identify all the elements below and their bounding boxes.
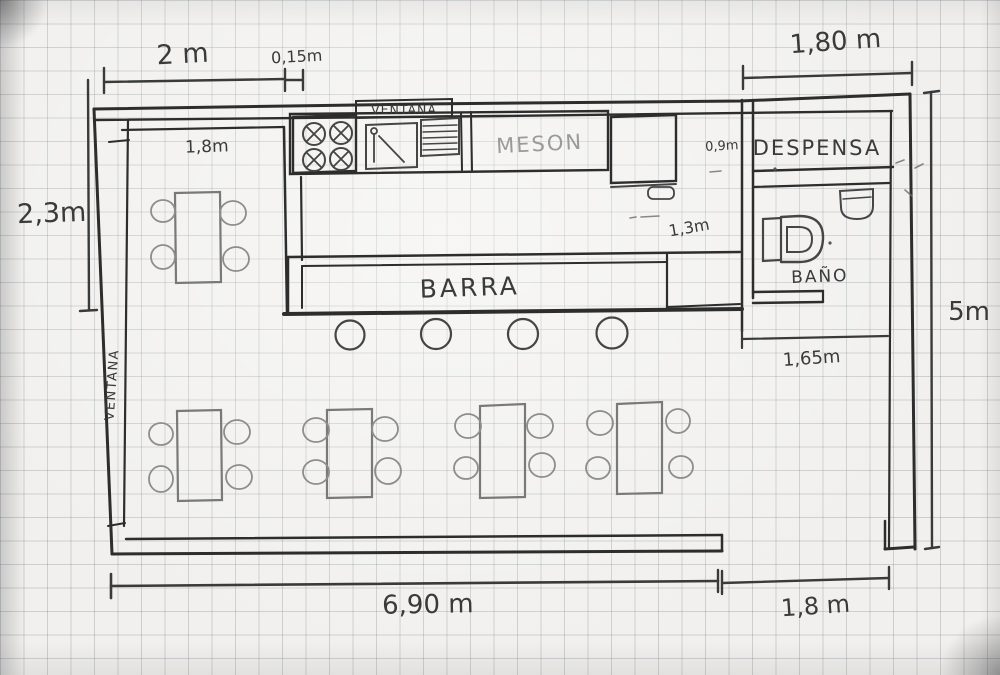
bar-counter: BARRA bbox=[284, 252, 742, 350]
dim-2-3m: 2,3m bbox=[17, 80, 97, 311]
floor-plan-sketch: 1,8m bbox=[0, 0, 1000, 675]
chair-icon bbox=[455, 414, 481, 438]
bottom-wall-outer bbox=[112, 551, 722, 554]
bar-top-outer bbox=[288, 252, 740, 257]
chair-icon bbox=[454, 457, 478, 479]
pencil-dot bbox=[773, 167, 776, 170]
bottom-wall-inner bbox=[126, 535, 722, 539]
dim-1-3m: 1,3m bbox=[641, 215, 711, 241]
dim-6-90m-label: 6,90 m bbox=[382, 589, 474, 621]
dim-5m: 5m bbox=[924, 91, 990, 549]
bathroom-bottom-wall-1 bbox=[753, 291, 823, 292]
graph-paper-photo: 1,8m bbox=[0, 0, 1000, 675]
chair-icon bbox=[527, 414, 553, 438]
kitchen-window-label: VENTANA bbox=[371, 102, 437, 117]
outer-walls bbox=[94, 94, 915, 554]
dim-1-65m-label: 1,65m bbox=[782, 346, 841, 371]
dim-2m: 2 m bbox=[104, 38, 285, 93]
nook-right-wall-inner bbox=[301, 177, 302, 260]
top-wall-outer bbox=[94, 94, 910, 109]
dining-tables bbox=[149, 402, 693, 501]
dining-nook: 1,8m bbox=[122, 127, 302, 313]
bathroom-label: BAÑO bbox=[791, 264, 849, 288]
dining-table bbox=[177, 410, 222, 501]
chair-icon bbox=[587, 411, 613, 435]
left-wall-inner bbox=[124, 120, 128, 526]
stove-burner-icon bbox=[303, 123, 325, 145]
dining-table bbox=[175, 192, 221, 283]
dim-1-8m-bottom-label: 1,8 m bbox=[780, 590, 851, 623]
bathroom-sink-icon bbox=[840, 189, 873, 219]
dim-1-3m-label: 1,3m bbox=[667, 215, 711, 241]
dim-1-80m-label: 1,80 m bbox=[789, 24, 882, 60]
bar-stool-icon bbox=[597, 318, 628, 349]
chair-icon bbox=[223, 247, 249, 271]
drain-shelf bbox=[421, 118, 459, 156]
dim-1-65m: 1,65m bbox=[742, 330, 888, 371]
nook-top-line bbox=[122, 127, 284, 130]
stove-burner-icon bbox=[303, 149, 325, 171]
pencil-mark bbox=[630, 217, 636, 218]
dim-0-15m: 0,15m bbox=[271, 46, 323, 91]
pantry-and-bathroom: DESPENSA BAÑO bbox=[742, 100, 893, 331]
fridge-body bbox=[611, 115, 676, 183]
pencil-mark bbox=[896, 160, 904, 163]
bar-front-edge bbox=[284, 309, 742, 314]
chair-icon bbox=[226, 465, 252, 489]
dining-table bbox=[480, 404, 525, 498]
bar-top-inner bbox=[302, 262, 667, 266]
chair-icon bbox=[303, 460, 329, 484]
bar-label: BARRA bbox=[419, 271, 520, 303]
chair-icon bbox=[220, 201, 246, 225]
kitchen-counter: MESON VENTANA bbox=[290, 99, 608, 174]
fridge-handle bbox=[648, 187, 674, 199]
nook-right-wall-outer bbox=[284, 127, 287, 313]
chair-icon bbox=[666, 409, 690, 433]
right-wall-outer bbox=[910, 94, 915, 549]
chair-icon bbox=[303, 418, 329, 442]
stove-burner-icon bbox=[330, 148, 352, 170]
chair-icon bbox=[151, 200, 175, 222]
pencil-mark bbox=[915, 164, 923, 168]
bathroom-bottom-wall-2 bbox=[753, 302, 823, 303]
dim-6-90m: 6,90 m bbox=[111, 570, 718, 621]
chair-icon bbox=[375, 458, 401, 484]
counter-divider-2 bbox=[471, 112, 472, 170]
bottom-right-cap bbox=[885, 547, 914, 549]
chair-icon bbox=[224, 420, 250, 444]
dining-table bbox=[327, 409, 372, 498]
left-window-tick-top bbox=[109, 140, 129, 142]
chair-icon bbox=[149, 423, 173, 445]
chair-icon bbox=[372, 417, 398, 441]
sink bbox=[366, 123, 417, 169]
stove-burner-icon bbox=[330, 122, 352, 144]
nook-width-label: 1,8m bbox=[185, 136, 229, 158]
dim-2m-label: 2 m bbox=[156, 38, 210, 72]
chair-icon bbox=[529, 453, 555, 477]
dim-1-8m-bottom: 1,8 m bbox=[722, 567, 889, 622]
counter-label: MESON bbox=[496, 130, 584, 159]
dim-0-15m-label: 0,15m bbox=[271, 46, 323, 68]
dimension-annotations: 2 m 0,15m 1,80 m 2,3m 5m bbox=[17, 24, 990, 623]
chair-icon bbox=[151, 245, 175, 269]
dim-2-3m-label: 2,3m bbox=[17, 197, 87, 230]
bar-stool-icon bbox=[508, 319, 538, 349]
dim-1-80m: 1,80 m bbox=[743, 24, 912, 89]
chair-icon bbox=[586, 457, 610, 479]
dining-table bbox=[617, 402, 662, 494]
right-wall-inner bbox=[889, 112, 891, 548]
chair-icon bbox=[149, 466, 173, 492]
bar-stool-icon bbox=[336, 321, 365, 350]
left-wall-outer bbox=[94, 109, 112, 554]
bathroom-top-wall bbox=[753, 183, 889, 187]
toilet-icon bbox=[763, 216, 823, 262]
chair-icon bbox=[669, 456, 693, 478]
pencil-dot bbox=[828, 241, 831, 244]
dim-5m-label: 5m bbox=[948, 297, 990, 327]
counter-divider-1 bbox=[461, 113, 462, 170]
bar-pass-bottom bbox=[667, 304, 740, 307]
pencil-mark bbox=[710, 171, 721, 172]
pantry-label: DESPENSA bbox=[753, 136, 882, 160]
bar-stool-icon bbox=[421, 319, 451, 349]
fridge bbox=[611, 115, 676, 199]
dim-0-9m-label: 0,9m bbox=[705, 138, 739, 155]
